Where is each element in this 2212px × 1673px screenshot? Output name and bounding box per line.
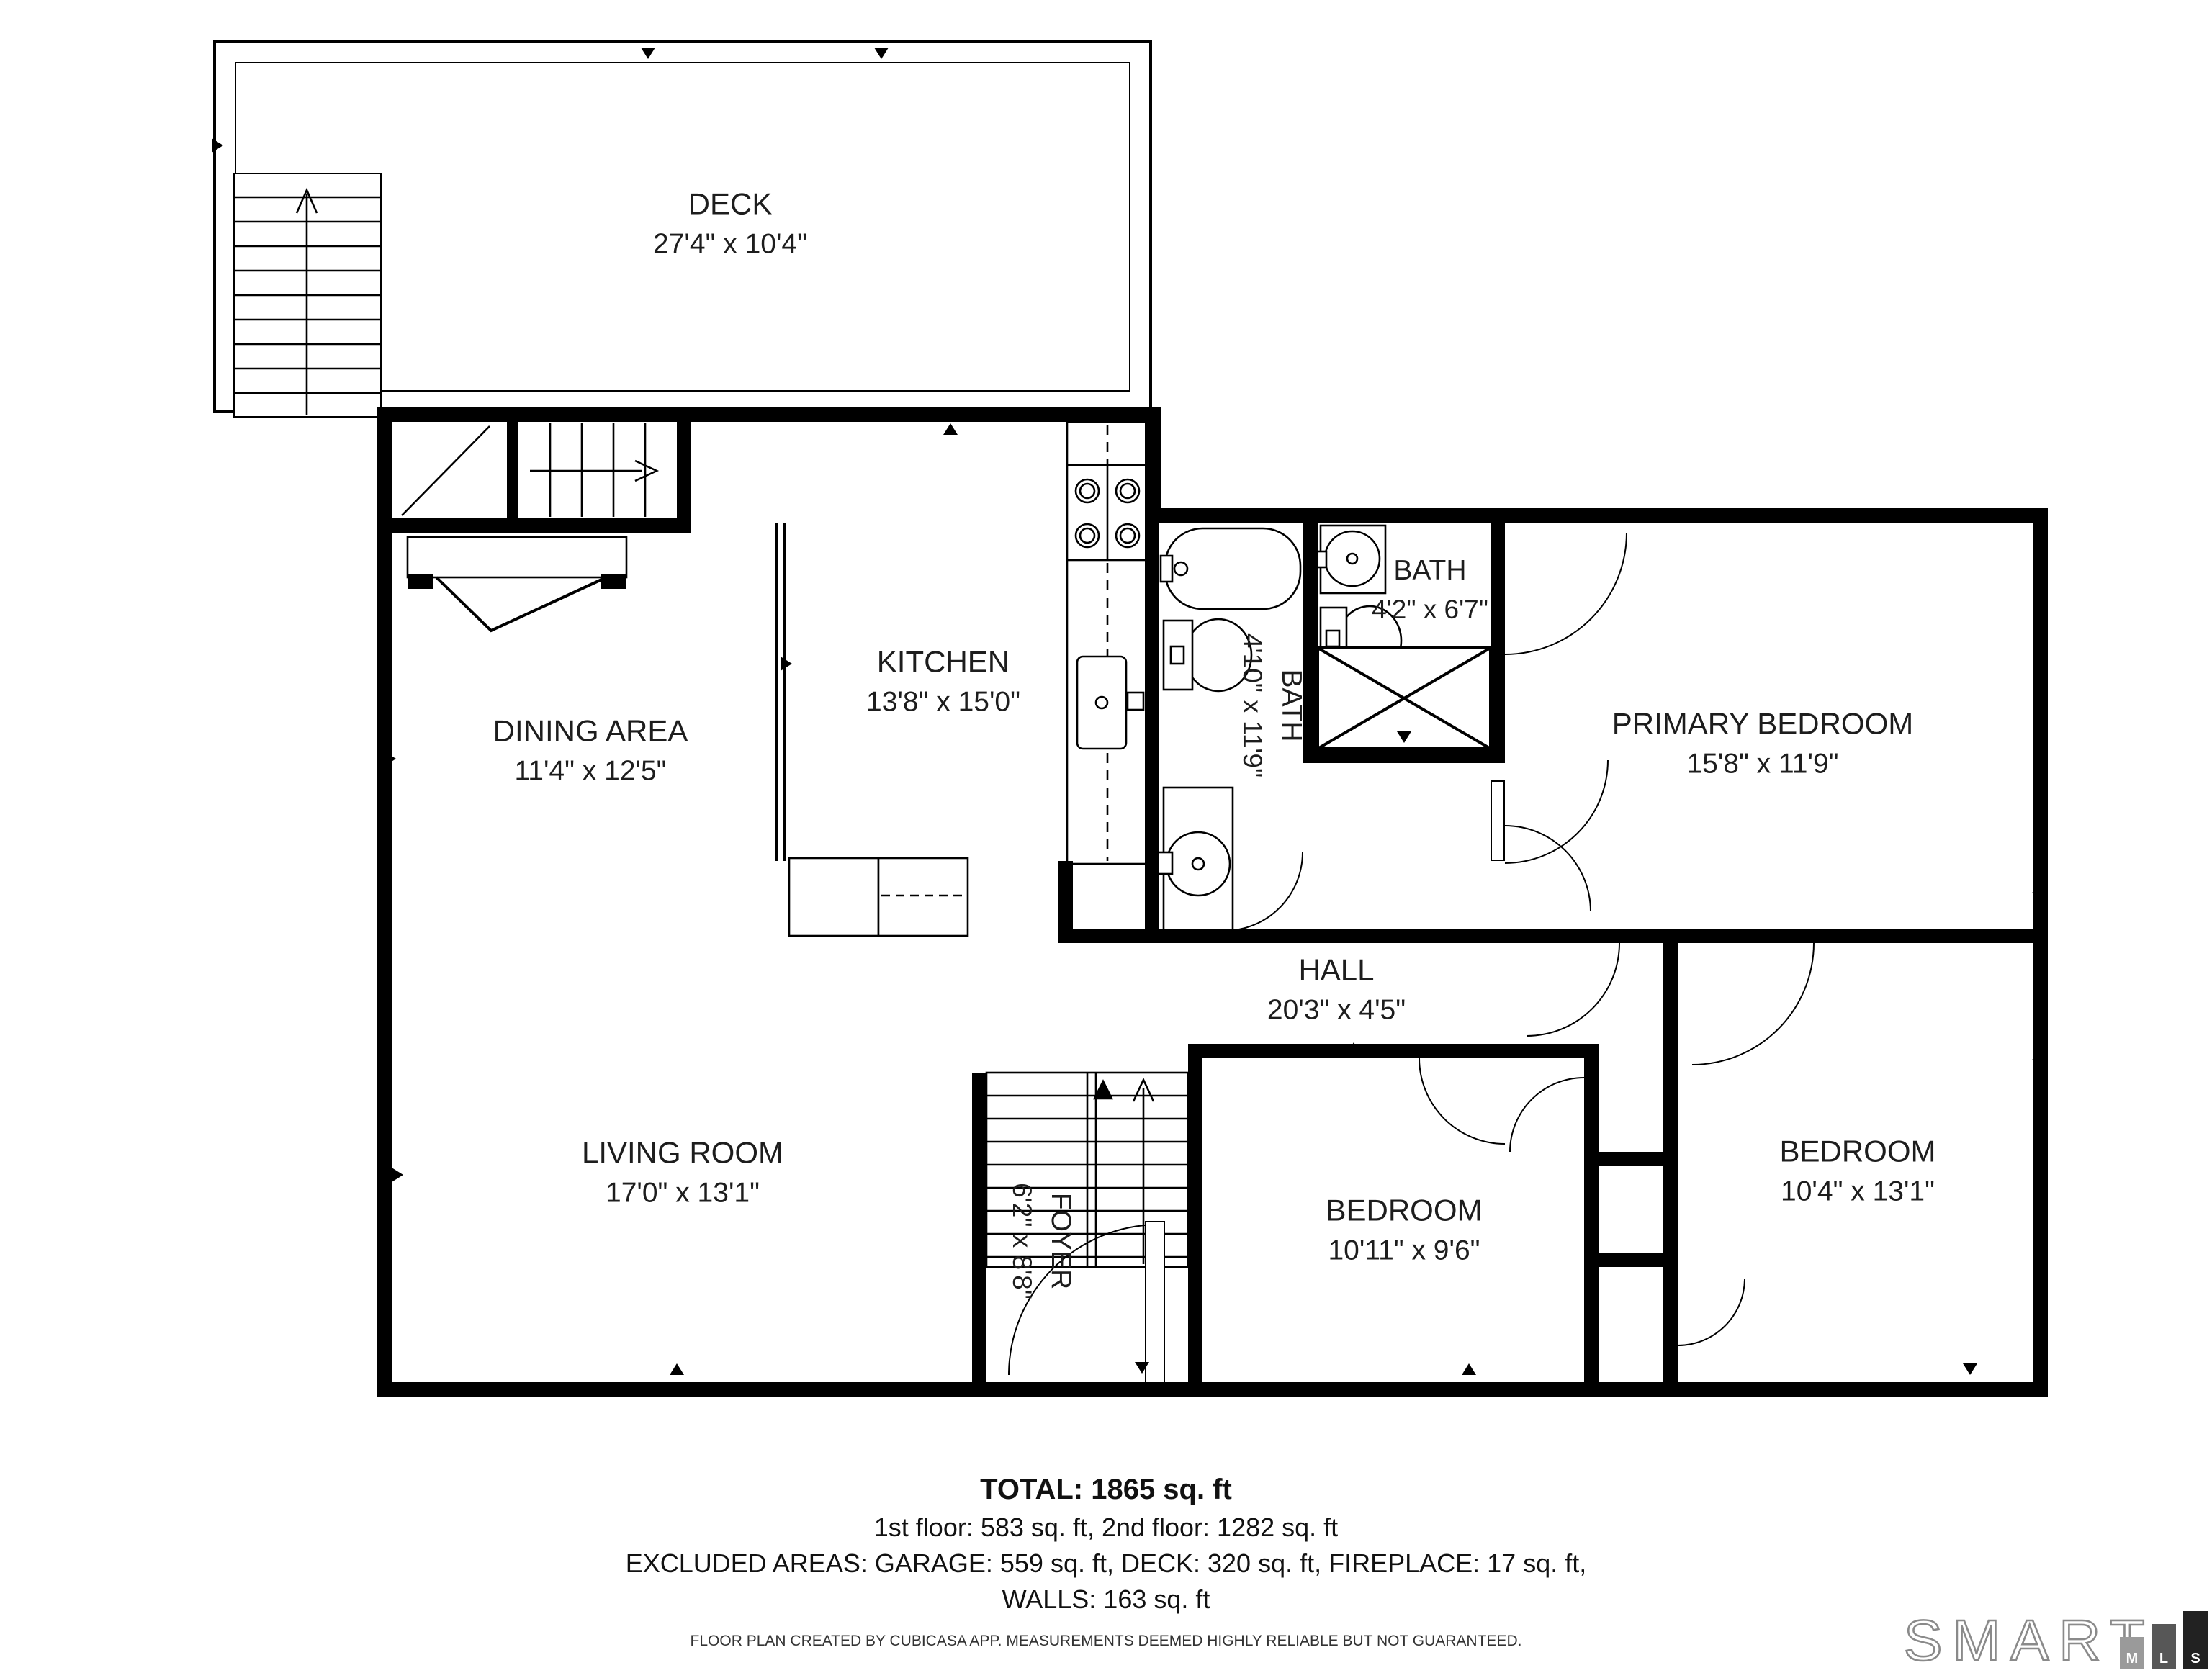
room-dims: 15'8" x 11'9" — [1612, 746, 1914, 785]
tick-marker — [874, 48, 889, 59]
sink-main-bath — [1158, 788, 1233, 940]
disclaimer-text: FLOOR PLAN CREATED BY CUBICASA APP. MEAS… — [0, 1633, 2212, 1650]
wall — [377, 407, 392, 1397]
room-name: BATH — [1372, 552, 1488, 592]
wall — [377, 1382, 2048, 1397]
smart-mls-logo: SMART M L S — [1904, 1610, 2212, 1673]
room-dims: 10'4" x 13'1" — [1779, 1173, 1935, 1213]
door-arc — [1224, 852, 1303, 932]
room-dims: 6'2" x 8'8" — [1003, 1183, 1040, 1299]
wall — [1188, 1044, 1599, 1058]
wall — [1663, 929, 1678, 1382]
wall — [1146, 508, 2048, 523]
room-dims: 4'10" x 11'9" — [1233, 633, 1271, 777]
wall — [972, 1073, 986, 1382]
partition-line — [775, 523, 778, 861]
kitchen-sink — [1077, 657, 1143, 749]
wall — [677, 407, 691, 533]
door-arc — [1509, 1077, 1584, 1152]
room-dims: 11'4" x 12'5" — [493, 753, 688, 793]
deck-stairs-box — [233, 173, 382, 418]
tick-marker — [1346, 1042, 1361, 1054]
room-label-hall: HALL 20'3" x 4'5" — [1267, 950, 1406, 1031]
excluded-areas: EXCLUDED AREAS: GARAGE: 559 sq. ft, DECK… — [0, 1549, 2212, 1579]
door-arc — [1505, 533, 1627, 655]
door-arc — [1505, 760, 1609, 864]
room-dims: 27'4" x 10'4" — [653, 226, 807, 266]
walls-area: WALLS: 163 sq. ft — [0, 1585, 2212, 1615]
tick-marker — [392, 1168, 403, 1182]
wall — [1188, 1058, 1202, 1382]
room-label-main-bath: BATH 4'10" x 11'9" — [1233, 633, 1310, 777]
tick-marker — [1135, 1362, 1149, 1374]
logo-bar-l: L — [2152, 1624, 2176, 1669]
room-name: PRIMARY BEDROOM — [1612, 703, 1914, 746]
tick-marker — [1262, 508, 1276, 520]
door-arc — [1678, 1279, 1745, 1346]
floor-areas: 1st floor: 583 sq. ft, 2nd floor: 1282 s… — [0, 1513, 2212, 1543]
tick-marker — [1397, 731, 1411, 743]
tick-marker — [781, 657, 792, 671]
room-name: DECK — [653, 184, 807, 226]
door-arc — [1527, 943, 1620, 1037]
room-dims: 20'3" x 4'5" — [1267, 992, 1406, 1032]
room-name: BEDROOM — [1779, 1131, 1935, 1173]
wall — [1584, 1044, 1599, 1382]
room-dims: 17'0" x 13'1" — [582, 1175, 783, 1214]
tick-marker — [1446, 508, 1460, 520]
tick-marker — [641, 48, 655, 59]
wall — [1491, 929, 2048, 943]
door-leaf — [1145, 1221, 1165, 1385]
door-leaf — [1491, 780, 1505, 861]
room-name: DINING AREA — [493, 711, 688, 753]
wall — [1491, 523, 1505, 763]
room-label-kitchen: KITCHEN 13'8" x 15'0" — [866, 641, 1020, 723]
kitchen-counter — [1067, 422, 1148, 864]
room-label-small-bath: BATH 4'2" x 6'7" — [1372, 552, 1488, 628]
room-name: LIVING ROOM — [582, 1132, 783, 1175]
tick-marker — [1963, 1363, 1977, 1375]
partition-line — [783, 523, 786, 861]
room-label-primary-bedroom: PRIMARY BEDROOM 15'8" x 11'9" — [1612, 703, 1914, 785]
stove — [1067, 465, 1148, 560]
logo-bar-s: S — [2183, 1611, 2208, 1669]
tick-marker — [212, 138, 223, 153]
tick-marker — [943, 423, 958, 435]
room-label-deck: DECK 27'4" x 10'4" — [653, 184, 807, 265]
room-dims: 10'11" x 9'6" — [1326, 1232, 1482, 1272]
room-label-bedroom-right: BEDROOM 10'4" x 13'1" — [1779, 1131, 1935, 1212]
door-arc — [1692, 943, 1815, 1065]
room-dims: 4'2" x 6'7" — [1372, 591, 1488, 628]
wall — [377, 407, 1161, 422]
tick-marker — [2032, 885, 2044, 900]
wall — [2033, 508, 2048, 1397]
wall — [377, 518, 691, 533]
room-name: BATH — [1271, 633, 1310, 777]
wall — [1303, 749, 1491, 763]
room-dims: 13'8" x 15'0" — [866, 684, 1020, 723]
fireplace — [408, 537, 626, 631]
logo-brand-text: SMART — [1904, 1610, 2155, 1673]
kitchen-cabinets — [789, 858, 968, 936]
wall — [1058, 929, 1505, 943]
door-arc — [1419, 1058, 1505, 1145]
room-name: KITCHEN — [866, 641, 1020, 684]
logo-bar-m: M — [2120, 1637, 2144, 1669]
wall — [1146, 407, 1161, 523]
room-name: BEDROOM — [1326, 1190, 1482, 1232]
wall — [601, 574, 626, 589]
room-name: HALL — [1267, 950, 1406, 992]
floor-plan: DECK 27'4" x 10'4" DINING AREA 11'4" x 1… — [0, 0, 2212, 1659]
room-name: FOYER — [1040, 1183, 1080, 1299]
tick-marker — [1750, 508, 1764, 520]
total-area: TOTAL: 1865 sq. ft — [0, 1474, 2212, 1507]
tick-marker — [2032, 1052, 2044, 1067]
area-summary: TOTAL: 1865 sq. ft 1st floor: 583 sq. ft… — [0, 1474, 2212, 1621]
room-label-foyer: FOYER 6'2" x 8'8" — [1003, 1183, 1079, 1299]
wall — [507, 422, 518, 518]
bathtub — [1161, 528, 1300, 609]
tick-marker — [1462, 1363, 1476, 1375]
upper-stairs — [402, 423, 657, 517]
tick-marker — [670, 1363, 684, 1375]
room-label-living-room: LIVING ROOM 17'0" x 13'1" — [582, 1132, 783, 1214]
room-label-dining-area: DINING AREA 11'4" x 12'5" — [493, 711, 688, 792]
wall — [408, 574, 433, 589]
room-label-bedroom-middle: BEDROOM 10'11" x 9'6" — [1326, 1190, 1482, 1271]
tick-marker — [385, 752, 396, 766]
